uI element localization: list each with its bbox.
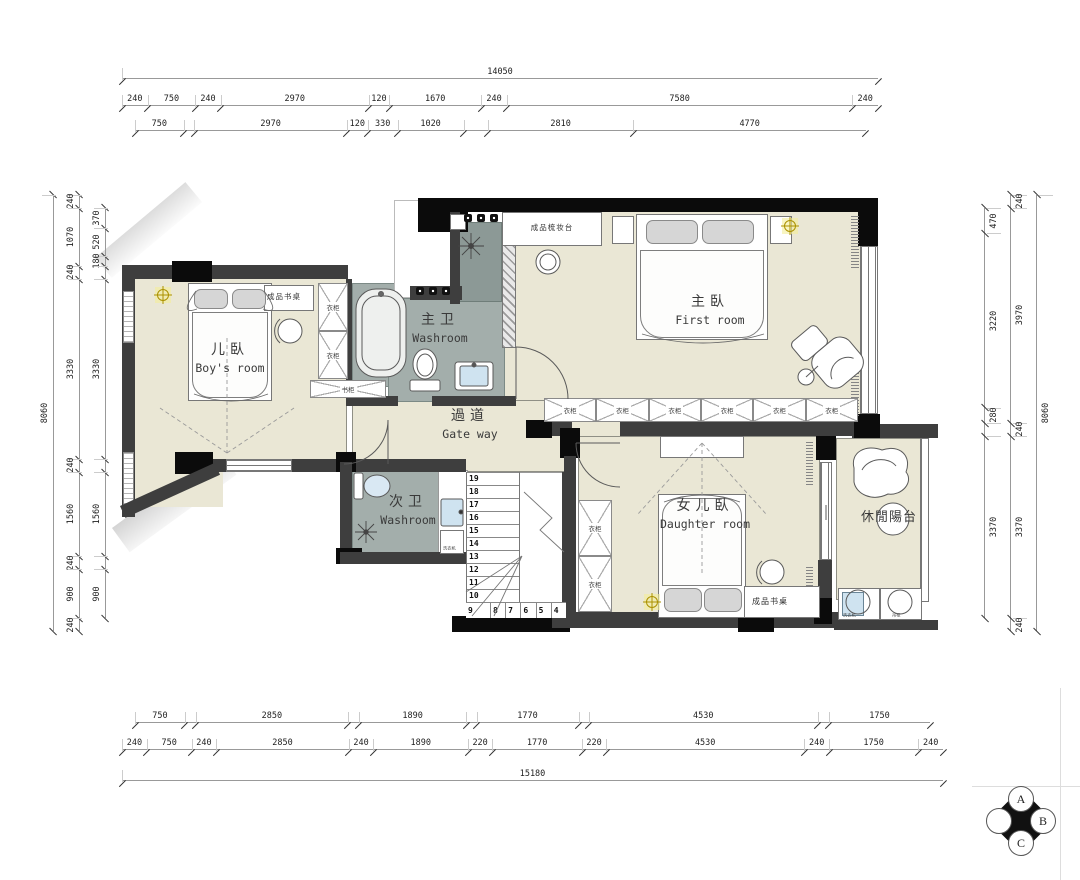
dim-segment: 240 [66,266,79,279]
stair-flight-upper: 19181716151413121110 [466,472,520,602]
dim-segment: 3330 [66,279,79,459]
stair-step-number: 6 [520,603,535,618]
dim-chain-left-total: 8060 [40,195,54,631]
dim-segment: 4530 [606,737,804,749]
dim-segment: 240 [195,93,221,105]
wardrobe-cell: 衣柜 [318,331,348,379]
dim-segment: 240 [481,93,507,105]
dim-chain-left-sub: 37052018033301560900 [92,208,106,618]
stair-step-number: 18 [467,485,519,498]
dim-segment: 3330 [92,279,105,459]
stair-step-number: 14 [467,537,519,550]
pillow [646,220,698,244]
dim-segment: 3370 [985,436,998,618]
floor-plan-sheet: 19181716151413121110 987654 [0,0,1080,880]
desk-label-boys: 成品书桌 [267,291,301,302]
wardrobe-cell: 衣柜 [318,283,348,331]
dim-segment: 470 [985,208,998,233]
desk-label-daughter: 成品书桌 [752,596,788,607]
dim-segment: 1750 [829,710,930,722]
dim-segment: 1770 [492,737,582,749]
stair-step-number: 13 [467,550,519,563]
wardrobe-cell: 衣柜 [596,398,648,422]
dim-segment: 7580 [507,93,852,105]
dim-segment: 370 [92,208,105,228]
compass-west [986,808,1012,834]
compass-north: A [1008,786,1034,812]
dim-segment [348,710,359,722]
stair-step-number: 10 [467,589,519,602]
dim-segment: 4770 [633,118,866,130]
daughter-wardrobe-col: 衣柜 衣柜 [578,500,612,612]
master-window [860,246,878,414]
dim-segment: 15180 [122,768,943,780]
wall [834,620,938,630]
dim-segment: 240 [1011,618,1024,631]
dim-chain-top-sub: 7502970120330102028104770 [135,118,866,131]
dim-chain-bottom-main: 2407502402850240189022017702204530240175… [122,737,943,750]
dim-segment: 240 [349,737,374,749]
stair-step-number: 7 [505,603,520,618]
dim-chain-bottom-sub: 75028501890177045301750 [135,710,930,723]
spotlight-icon [429,287,437,295]
dim-segment: 2850 [216,737,348,749]
dim-segment: 2850 [196,710,348,722]
hang-cabinet-label: 吊柜 [892,612,901,618]
dim-segment: 280 [985,408,998,423]
dim-chain-right-total: 8060 [1036,195,1050,631]
pillow [232,289,266,309]
stair-step-number: 4 [551,603,566,618]
dim-segment: 8060 [40,195,53,631]
dim-segment: 4530 [589,710,818,722]
room-label-balcony: 休閒陽台 [844,508,934,526]
room-label-master-bath: 主卫 Washroom [398,312,482,346]
wall [432,396,516,406]
pillow [704,588,742,612]
dim-segment: 120 [369,93,390,105]
pillow [664,588,702,612]
dim-segment: 240 [192,737,217,749]
dim-segment: 240 [66,459,79,472]
stair-flight-lower: 987654 [466,602,566,618]
dim-segment: 8060 [1037,195,1050,631]
dim-segment: 240 [1011,195,1024,208]
dim-segment: 240 [122,93,148,105]
dim-chain-bottom-total: 15180 [122,768,943,781]
dim-segment [818,710,829,722]
dim-segment: 330 [368,118,398,130]
dim-segment: 1560 [66,472,79,556]
wardrobe-cell: 衣柜 [753,398,805,422]
column [816,436,836,460]
wall [122,265,348,279]
dim-chain-top-main: 240750240297012016702407580240 [122,93,878,106]
stair-step-number: 19 [467,472,519,485]
compass: A B C [986,786,1056,856]
stair-step-number: 12 [467,563,519,576]
boys-wardrobe-col: 衣柜 衣柜 [318,283,348,379]
dim-segment [92,266,105,279]
dim-segment: 240 [66,195,79,208]
wardrobe-cell: 衣柜 [578,556,612,612]
column [560,428,580,458]
room-label-master: 主臥 First room [655,294,765,328]
stair-step-number: 15 [467,524,519,537]
dim-chain-right-main: 24039702403370240 [1010,195,1024,631]
dim-segment [466,710,476,722]
dim-segment: 240 [66,618,79,631]
wardrobe-cell: 衣柜 [544,398,596,422]
wardrobe-cell: 衣柜 [701,398,753,422]
wardrobe-cell: 衣柜 [578,500,612,556]
dim-segment: 14050 [122,66,878,78]
dim-segment [184,118,195,130]
dim-segment: 220 [468,737,492,749]
dim-chain-right-sub: 47032202803370 [984,208,998,618]
room-label-second-bath: 次卫 Washroom [362,494,454,528]
washer-label: 洗衣机 [843,612,856,618]
wall [340,462,352,558]
curtain [851,216,859,268]
room-label-daughter: 女儿臥 Daughter room [645,498,765,532]
pillow [194,289,228,309]
dim-segment: 240 [66,556,79,569]
dim-segment: 750 [147,737,192,749]
dim-segment: 2810 [488,118,633,130]
washer-label: 洗衣机 [443,545,456,551]
dim-segment: 1020 [398,118,464,130]
pillow [702,220,754,244]
dim-chain-top-total: 14050 [122,66,878,79]
stair-step-number: 17 [467,498,519,511]
stairs-landing [520,472,567,604]
dim-segment: 900 [92,569,105,618]
dim-segment: 240 [804,737,829,749]
dim-segment: 120 [347,118,368,130]
wall [564,456,576,618]
spotlight-icon [490,214,498,222]
nightstand [612,216,634,244]
dresser-label: 成品梳妆台 [508,222,596,233]
column [858,198,878,246]
room-label-corridor: 過道 Gate way [415,408,525,442]
stair-step-number: 11 [467,576,519,589]
dim-segment: 3970 [1011,208,1024,423]
stair-step-number: 8 [490,603,505,618]
dim-segment: 3220 [985,233,998,407]
dim-segment [92,556,105,569]
window-radiator [123,291,134,343]
dim-segment: 750 [135,710,185,722]
bookcase-cell: 书柜 [310,380,386,398]
dim-chain-left-main: 240107024033302401560240900240 [66,195,80,631]
master-wardrobe-row: 衣柜 衣柜 衣柜 衣柜 衣柜 衣柜 [544,398,858,422]
spotlight-icon [416,287,424,295]
spotlight-icon [477,214,485,222]
dim-segment: 240 [852,93,878,105]
dim-segment: 1770 [477,710,579,722]
dim-segment [464,118,488,130]
dim-segment: 1750 [829,737,918,749]
dim-segment: 1890 [359,710,467,722]
dim-segment: 750 [135,118,184,130]
balcony-slider [820,462,832,560]
dim-segment [579,710,589,722]
dim-segment [92,459,105,472]
wall [440,198,878,212]
column [172,261,212,282]
dim-segment: 1070 [66,208,79,266]
dim-segment: 3370 [1011,436,1024,618]
dim-segment: 2970 [221,93,369,105]
dim-segment: 520 [92,228,105,256]
wardrobe-cell: 衣柜 [806,398,858,422]
dim-segment: 240 [1011,423,1024,436]
dim-segment: 1890 [373,737,468,749]
window [226,459,292,472]
dim-segment [185,710,196,722]
dim-segment: 750 [148,93,196,105]
spotlight-icon [464,214,472,222]
column [526,420,552,438]
dim-segment: 900 [66,569,79,618]
stair-step-number: 16 [467,511,519,524]
nightstand [770,216,792,244]
dim-segment: 1560 [92,472,105,556]
dim-segment [985,423,998,436]
bed-head-console [660,436,744,458]
wardrobe-cell: 衣柜 [649,398,701,422]
dim-segment: 180 [92,256,105,266]
stair-step-number: 5 [536,603,551,618]
dim-segment: 1670 [389,93,481,105]
compass-south: C [1008,830,1034,856]
curtain [806,440,813,485]
stair-step-number: 9 [466,603,490,618]
dim-segment: 220 [582,737,606,749]
dim-segment: 240 [122,737,147,749]
spotlight-icon [442,287,450,295]
shower-floor [456,222,502,302]
balcony-cabinet-right [880,588,922,620]
dim-segment: 2970 [194,118,347,130]
dim-segment: 240 [918,737,943,749]
boys-bookcase: 书柜 [310,380,386,398]
room-label-boys: 儿臥 Boy's room [168,342,292,376]
crop-line-v [1060,688,1061,880]
compass-east: B [1030,808,1056,834]
